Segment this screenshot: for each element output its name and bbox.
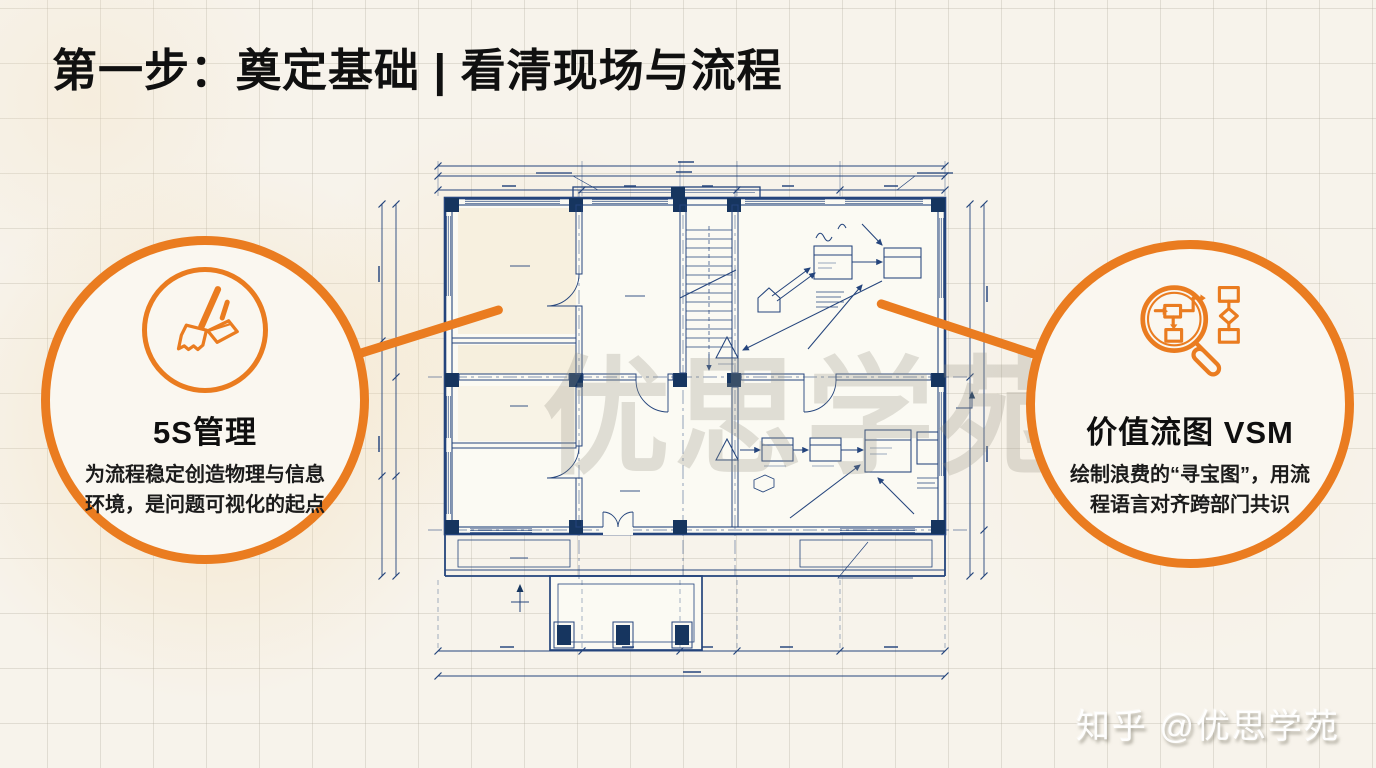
- blueprint-svg: [370, 146, 1020, 698]
- page-title: 第一步：奠定基础 | 看清现场与流程: [52, 34, 783, 99]
- broom-icon-ring: [142, 267, 268, 393]
- card-heading-vsm: 价值流图 VSM: [1086, 407, 1294, 452]
- broom-dustpan-icon: [162, 285, 248, 376]
- magnifier-flowchart-icon: [1127, 275, 1253, 401]
- card-desc-5s: 为流程稳定创造物理与信息 环境，是问题可视化的起点: [85, 460, 325, 520]
- card-heading-5s: 5S管理: [153, 407, 257, 452]
- callout-5s: 5S管理 为流程稳定创造物理与信息 环境，是问题可视化的起点: [41, 236, 369, 564]
- card-desc-vsm: 绘制浪费的“寻宝图”，用流 程语言对齐跨部门共识: [1070, 460, 1310, 520]
- callout-vsm: 价值流图 VSM 绘制浪费的“寻宝图”，用流 程语言对齐跨部门共识: [1026, 240, 1354, 568]
- floor-plan-blueprint: 优思学苑: [370, 146, 1020, 706]
- slide: 第一步：奠定基础 | 看清现场与流程: [0, 0, 1376, 768]
- brand-watermark: 知乎 @优思学苑: [1076, 699, 1340, 748]
